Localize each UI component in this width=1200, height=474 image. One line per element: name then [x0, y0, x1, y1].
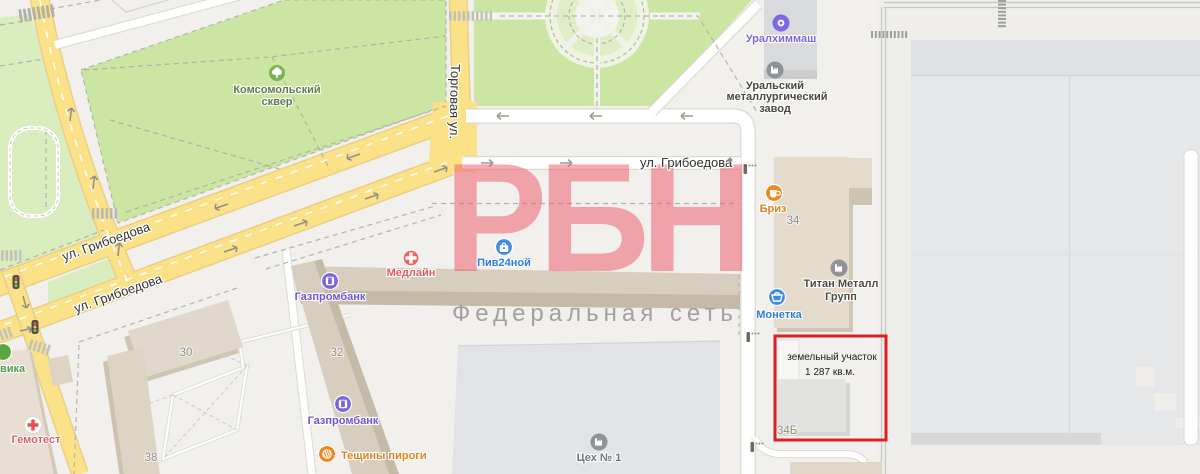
- svg-text:сквер: сквер: [261, 96, 292, 108]
- svg-text:Тещины пироги: Тещины пироги: [341, 450, 427, 462]
- svg-text:Титан Металл: Титан Металл: [804, 278, 879, 290]
- svg-text:завод: завод: [759, 103, 791, 115]
- svg-text:Федеральная сеть: Федеральная сеть: [452, 300, 738, 327]
- svg-text:30: 30: [180, 347, 193, 359]
- svg-text:металлургический: металлургический: [727, 91, 828, 103]
- svg-text:Медлайн: Медлайн: [387, 267, 436, 279]
- svg-text:Торговая ул.: Торговая ул.: [447, 64, 463, 139]
- svg-text:ул. Грибоедова: ул. Грибоедова: [640, 155, 733, 170]
- svg-text:Газпромбанк: Газпромбанк: [308, 415, 379, 427]
- svg-text:Гемотест: Гемотест: [12, 434, 62, 446]
- svg-text:Уралхиммаш: Уралхиммаш: [746, 33, 817, 45]
- svg-text:Цех № 1: Цех № 1: [577, 452, 622, 464]
- svg-text:32: 32: [331, 347, 344, 359]
- svg-text:Монетка: Монетка: [756, 309, 802, 321]
- svg-text:34: 34: [787, 215, 800, 227]
- svg-text:Пив24ной: Пив24ной: [477, 257, 531, 269]
- svg-text:Групп: Групп: [825, 291, 857, 303]
- svg-text:Бриз: Бриз: [760, 203, 787, 215]
- svg-text:1 287 кв.м.: 1 287 кв.м.: [805, 367, 855, 378]
- svg-text:земельный участок: земельный участок: [787, 352, 877, 363]
- svg-text:Комсомольский: Комсомольский: [233, 84, 320, 96]
- svg-text:Газпромбанк: Газпромбанк: [295, 291, 366, 303]
- svg-text:вика: вика: [0, 363, 26, 375]
- svg-text:38: 38: [145, 452, 158, 464]
- svg-text:34Б: 34Б: [777, 425, 797, 437]
